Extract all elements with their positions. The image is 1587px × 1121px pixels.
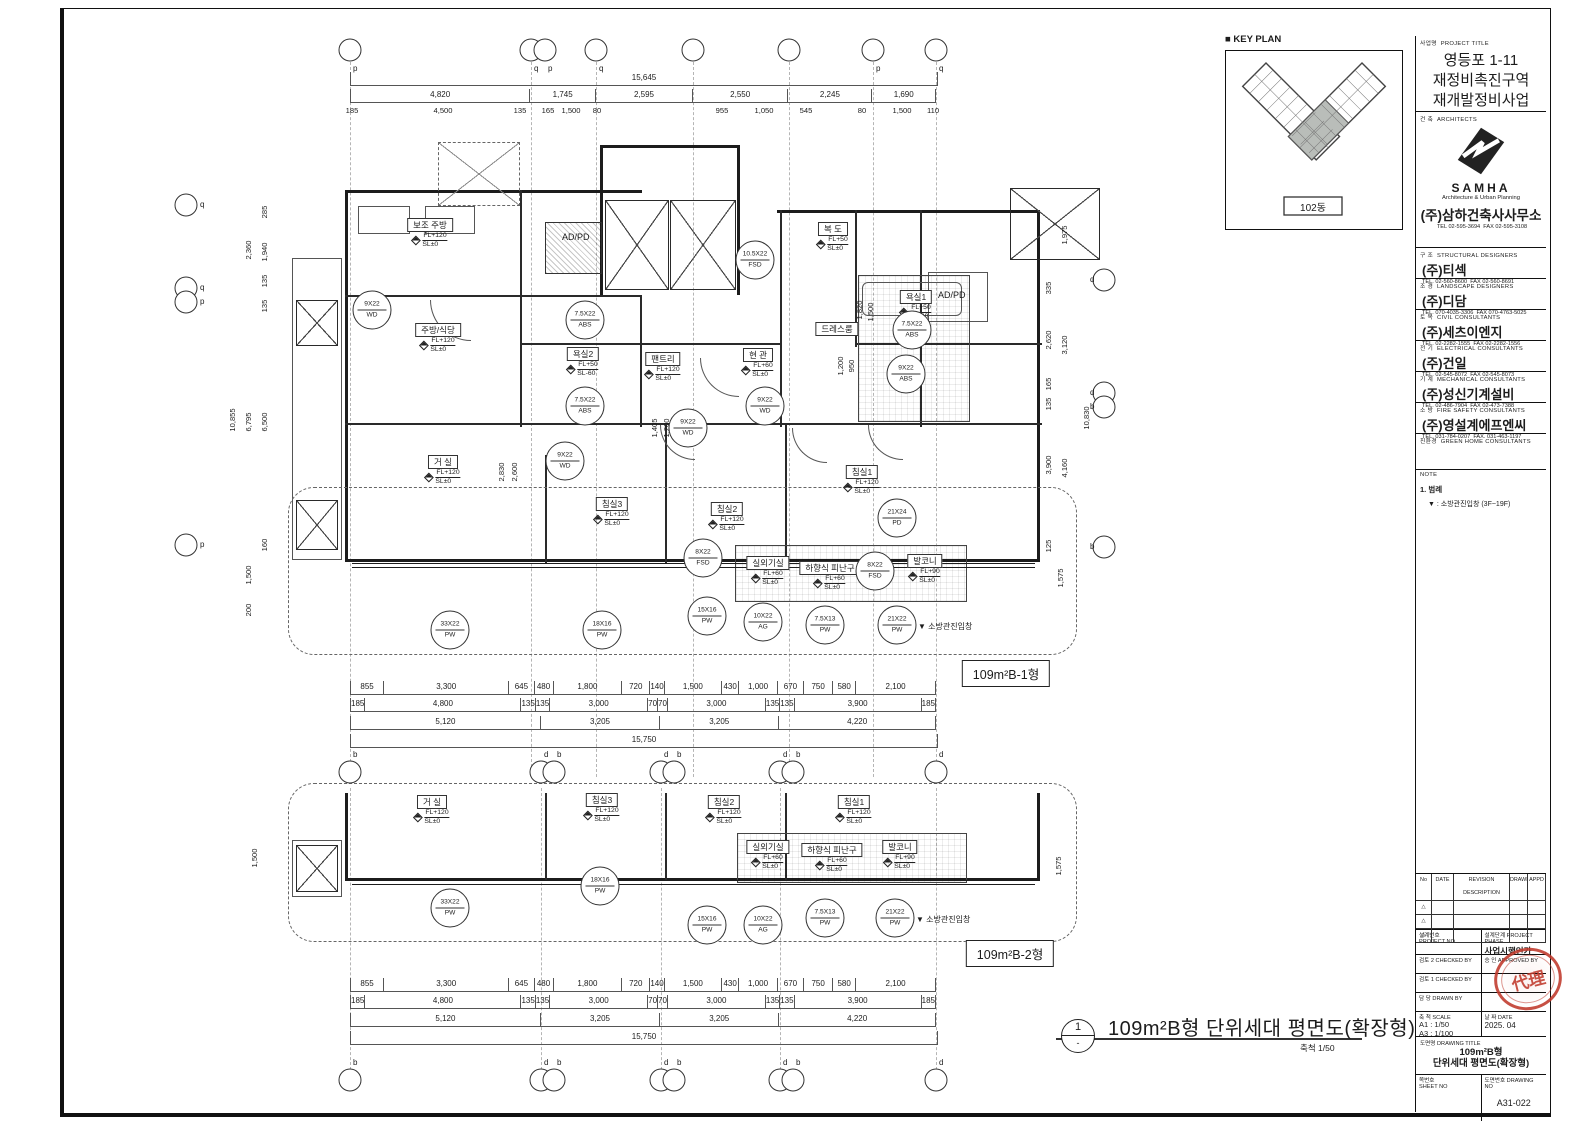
- opening-size: 15X16: [693, 916, 722, 926]
- dimension-value-vertical: 125: [1044, 540, 1053, 553]
- opening-size: 21X24: [883, 509, 912, 519]
- dimension-value: 80: [858, 106, 866, 115]
- key-plan: 102동: [1225, 50, 1403, 230]
- plan-shape-w: [600, 145, 740, 148]
- plan-shape-xbox: [605, 200, 669, 290]
- sl-value: SL±0: [762, 863, 783, 871]
- level-symbol-icon: [419, 340, 429, 350]
- dimension-value: 135: [520, 698, 534, 711]
- dimension-row: 5,1203,2053,2054,220: [350, 716, 936, 730]
- grid-bubble-letter: q: [200, 200, 204, 209]
- opening-code: PW: [445, 632, 456, 640]
- floor-level-note: FL+120 SL±0: [594, 511, 629, 527]
- sheet-footer-title: 109m²B형 단위세대 평면도(확장형): [1108, 1012, 1415, 1041]
- plan-shape-t: [345, 295, 642, 297]
- room-label: 복 도: [818, 222, 848, 236]
- dimension-value: 135: [535, 698, 549, 711]
- grid-bubble-letter: p: [876, 64, 880, 73]
- dimension-value: 5,120: [350, 716, 540, 729]
- dimension-value: 70: [647, 995, 657, 1008]
- opening-marker: 7.5X22 ABS: [566, 301, 605, 340]
- fl-value: FL+120: [854, 479, 879, 488]
- dimension-value: 4,820: [350, 89, 529, 102]
- dimension-value: 720: [621, 681, 649, 694]
- dimension-row: 4,8201,7452,5952,5502,2451,690: [350, 89, 936, 103]
- opening-code: FSD: [868, 573, 881, 581]
- floor-level-note: FL+50 SL±0: [817, 236, 848, 252]
- grid-bubble: [543, 761, 566, 784]
- consultant-firm: (주)디담: [1420, 290, 1542, 310]
- room-label: 침실2: [708, 795, 740, 809]
- dimension-value: 3,000: [549, 995, 647, 1008]
- fl-value: FL+120: [435, 469, 460, 478]
- level-symbol-icon: [583, 810, 593, 820]
- dimension-value: 670: [777, 978, 803, 991]
- dimension-value: 1,500: [664, 978, 721, 991]
- floor-level-note: FL+120 SL±0: [706, 809, 741, 825]
- dimension-row: 8553,3006454801,8007201401,5004301,00067…: [350, 978, 936, 992]
- adpd-label: AD/PD: [938, 290, 966, 300]
- plan-shape-w: [777, 210, 1040, 213]
- consultants-sections: 구 조 STRUCTURAL DESIGNERS (주)티섹 TEL. 02-5…: [1416, 248, 1546, 470]
- dimension-value-vertical: 1,200: [836, 356, 845, 375]
- opening-size: 7.5X13: [811, 616, 840, 626]
- opening-size: 7.5X22: [571, 311, 600, 321]
- consultant-firm: (주)건일: [1420, 352, 1542, 372]
- fl-value: FL+120: [424, 809, 449, 818]
- floor-level-note: FL+120 SL±0: [425, 469, 460, 485]
- room-label: 거 실: [417, 795, 447, 809]
- consultant-firm: (주)영설계에프엔씨: [1420, 414, 1542, 434]
- room-label: 욕실2: [567, 347, 599, 361]
- plan-shape-xbox: [296, 300, 338, 346]
- fl-value: FL+60: [752, 362, 773, 371]
- dimension-value: 135: [779, 995, 793, 1008]
- opening-marker: 7.5X13 PW: [806, 606, 845, 645]
- grid-bubble-letter: b: [557, 750, 561, 759]
- dimension-value: 2,595: [595, 89, 692, 102]
- floor-level-note: FL+90 SL±0: [909, 568, 940, 584]
- opening-marker: 9X22 WD: [669, 409, 708, 448]
- opening-code: WD: [683, 430, 694, 438]
- dimension-value: 70: [657, 995, 667, 1008]
- dimension-value: 2,100: [855, 978, 936, 991]
- opening-marker: 8X22 FSD: [856, 552, 895, 591]
- grid-bubble-letter: d: [544, 750, 548, 759]
- floor-level-note: FL+120 SL±0: [844, 479, 879, 495]
- grid-bubble-letter: b: [353, 1058, 357, 1067]
- floor-level-note: FL+120 SL±0: [584, 807, 619, 823]
- dimension-value-vertical: 2,600: [510, 462, 519, 481]
- dimension-value: 645: [508, 978, 533, 991]
- consultant-firm: (주)세츠이엔지: [1420, 321, 1542, 341]
- opening-marker: 33X22 PW: [431, 611, 470, 650]
- dimension-value: 80: [593, 106, 601, 115]
- opening-size: 10X22: [749, 613, 778, 623]
- fl-value: FL+60: [824, 575, 845, 584]
- floor-level-note: FL+60 SL±0: [814, 575, 845, 591]
- dimension-value: 185: [921, 995, 936, 1008]
- grid-bubble: [534, 39, 557, 62]
- dimension-value: 3,205: [659, 1013, 778, 1026]
- room-label: 발코니: [882, 840, 917, 854]
- opening-code: PW: [892, 627, 903, 635]
- dimension-value: 1,745: [529, 89, 595, 102]
- fl-value: FL+120: [719, 516, 744, 525]
- dimension-value: 1,500: [664, 681, 721, 694]
- plan-shape-w: [352, 884, 1035, 885]
- plan-shape-xbox: [1010, 188, 1100, 260]
- level-symbol-icon: [705, 812, 715, 822]
- opening-size: 7.5X22: [898, 321, 927, 331]
- opening-marker: 10.5X22 FSD: [736, 241, 775, 280]
- opening-marker: 15X16 PW: [688, 906, 727, 945]
- dimension-value: 4,800: [364, 698, 520, 711]
- sl-value: SL±0: [655, 375, 680, 383]
- grid-bubble-letter: p: [200, 297, 204, 306]
- plan-shape-cl: [350, 62, 351, 777]
- level-symbol-icon: [411, 235, 421, 245]
- dimension-value: 135: [779, 698, 793, 711]
- opening-code: ABS: [578, 408, 591, 416]
- drawing-title-1: 109m²B형: [1459, 1047, 1502, 1058]
- dimension-value: 2,245: [787, 89, 871, 102]
- opening-marker: 18X16 PW: [583, 611, 622, 650]
- dimension-value: 2,100: [855, 681, 936, 694]
- dimension-value: 480: [534, 681, 553, 694]
- grid-bubble: [1093, 536, 1116, 559]
- opening-size: 9X22: [551, 452, 580, 462]
- fl-value: FL+60: [762, 854, 783, 863]
- dimension-value: 645: [508, 681, 533, 694]
- grid-bubble: [175, 194, 198, 217]
- opening-size: 9X22: [674, 419, 703, 429]
- dimension-value: 185: [921, 698, 936, 711]
- grid-bubble-letter: p: [548, 64, 552, 73]
- floor-level-note: FL+60 SL±0: [752, 570, 783, 586]
- dimension-value: 110: [927, 106, 939, 115]
- fl-value: FL+120: [716, 809, 741, 818]
- dimension-value: 135: [765, 995, 779, 1008]
- level-symbol-icon: [843, 482, 853, 492]
- dimension-value-vertical: 335: [1044, 282, 1053, 295]
- floor-level-note: FL+120 SL±0: [420, 337, 455, 353]
- opening-code: WD: [760, 408, 771, 416]
- grid-bubble: [778, 39, 801, 62]
- dimension-value: 70: [647, 698, 657, 711]
- dimension-value-vertical: 135: [260, 275, 269, 288]
- dimension-value: 855: [350, 681, 383, 694]
- opening-marker: 9X22 WD: [746, 387, 785, 426]
- level-symbol-icon: [424, 472, 434, 482]
- room-label: 침실1: [846, 465, 878, 479]
- fl-value: FL+90: [894, 854, 915, 863]
- grid-bubble-letter: p: [200, 540, 204, 549]
- opening-code: PW: [595, 888, 606, 896]
- dimension-value-vertical: 135: [260, 300, 269, 313]
- dimension-value: 4,500: [433, 106, 452, 115]
- plan-shape-t: [520, 343, 782, 345]
- grid-bubble: [925, 1069, 948, 1092]
- room-label: 침실2: [711, 502, 743, 516]
- fl-value: FL+60: [762, 570, 783, 579]
- opening-marker: 10X22 AG: [744, 906, 783, 945]
- dimension-value: 580: [832, 978, 855, 991]
- dimension-value-vertical: 135: [1044, 398, 1053, 411]
- room-label: 침실3: [596, 497, 628, 511]
- opening-code: ABS: [899, 376, 912, 384]
- dimension-value-vertical: 1,820: [855, 300, 864, 319]
- project-title-text: 영등포 1-11 재정비촉진구역 재개발정비사업: [1420, 51, 1542, 111]
- opening-code: WD: [367, 312, 378, 320]
- level-symbol-icon: [741, 365, 751, 375]
- grid-bubble-letter: b: [1090, 542, 1094, 551]
- room-label: 욕실1: [900, 290, 932, 304]
- opening-marker: 15X16 PW: [688, 597, 727, 636]
- room-label: 거 실: [428, 455, 458, 469]
- dimension-value: 1,500: [561, 106, 580, 115]
- sl-value: SL±0: [430, 346, 455, 354]
- grid-bubble: [862, 39, 885, 62]
- dimension-value: 2,550: [692, 89, 787, 102]
- grid-bubble-letter: d: [1090, 388, 1094, 397]
- floor-level-note: FL+60 SL±0: [742, 362, 773, 378]
- grid-bubble: [543, 1069, 566, 1092]
- dimension-value: 3,205: [540, 716, 659, 729]
- sl-value: SL±0: [854, 488, 879, 496]
- opening-size: 9X22: [358, 301, 387, 311]
- dimension-value: 580: [832, 681, 855, 694]
- room-label: 침실3: [586, 793, 618, 807]
- grid-bubble: [1093, 269, 1116, 292]
- floor-level-note: FL+120 SL±0: [414, 809, 449, 825]
- level-symbol-icon: [815, 860, 825, 870]
- grid-bubble-letter: b: [796, 750, 800, 759]
- dimension-value: 3,300: [383, 681, 508, 694]
- opening-size: 9X22: [892, 365, 921, 375]
- grid-bubble-letter: d: [939, 750, 943, 759]
- sl-value: SL±0: [826, 866, 847, 874]
- level-symbol-icon: [566, 364, 576, 374]
- opening-size: 8X22: [689, 549, 718, 559]
- grid-bubble: [339, 39, 362, 62]
- grid-bubble-letter: d: [783, 750, 787, 759]
- dimension-value: 855: [350, 978, 383, 991]
- dimension-value-vertical: 10,855: [228, 408, 237, 431]
- grid-bubble-letter: d: [664, 750, 668, 759]
- room-label: 보조 주방: [407, 218, 453, 232]
- dimension-value: 4,220: [778, 716, 936, 729]
- dimension-total: 15,750: [350, 1031, 938, 1045]
- opening-marker: 33X22 PW: [431, 889, 470, 928]
- fl-value: FL+60: [826, 857, 847, 866]
- dimension-value: 1,800: [553, 978, 622, 991]
- room-label: 발코니: [907, 554, 942, 568]
- room-label: 실외기실: [746, 556, 789, 570]
- dimension-value: 720: [621, 978, 649, 991]
- level-symbol-icon: [751, 857, 761, 867]
- grid-bubble: [339, 761, 362, 784]
- sl-value: SL±0: [435, 478, 460, 486]
- opening-size: 21X22: [883, 616, 912, 626]
- plan-shape-thin: [358, 206, 410, 234]
- fl-value: FL+50: [827, 236, 848, 245]
- grid-bubble-letter: q: [939, 64, 943, 73]
- dimension-value: 185: [346, 106, 359, 115]
- drawing-title-2: 단위세대 평면도(확장형): [1433, 1058, 1529, 1069]
- dimension-value: 3,300: [383, 978, 508, 991]
- grid-bubble: [782, 761, 805, 784]
- opening-size: 7.5X13: [811, 909, 840, 919]
- sl-value: SL±0: [762, 579, 783, 587]
- sl-value: SL±0: [604, 520, 629, 528]
- dimension-value: 135: [520, 995, 534, 1008]
- plan-shape-t: [520, 190, 522, 427]
- fl-value: FL+120: [655, 366, 680, 375]
- opening-size: 9X22: [751, 397, 780, 407]
- opening-size: 10X22: [749, 916, 778, 926]
- dimension-value: 1,500: [892, 106, 911, 115]
- opening-marker: 21X22 PW: [876, 899, 915, 938]
- date-value: 2025. 04: [1485, 1021, 1544, 1030]
- dimension-value-vertical: 4,160: [1060, 458, 1069, 477]
- samha-logo-icon: [1456, 126, 1506, 176]
- fl-value: FL+90: [919, 568, 940, 577]
- grid-bubble-letter: b: [677, 750, 681, 759]
- level-symbol-icon: [644, 369, 654, 379]
- floor-level-note: FL+120 SL±0: [645, 366, 680, 382]
- sl-value: SL±0: [894, 863, 915, 871]
- scale-date-row: 축 척 SCALE A1 : 1/50A3 : 1/100 날 짜 DATE 2…: [1416, 1012, 1546, 1037]
- dimension-value: 70: [657, 698, 667, 711]
- dimension-value: 670: [777, 681, 803, 694]
- dimension-value-vertical: 1,575: [1056, 568, 1065, 587]
- floor-level-note: FL+120 SL±0: [836, 809, 871, 825]
- opening-code: PW: [890, 920, 901, 928]
- dimension-value: 750: [803, 681, 832, 694]
- dimension-value: 185: [350, 698, 364, 711]
- room-label: 실외기실: [746, 840, 789, 854]
- grid-bubble-letter: b: [796, 1058, 800, 1067]
- opening-code: WD: [560, 463, 571, 471]
- revision-grid: NoDATEREVISION DESCRIPTIONDRAWNAPPD △ △ …: [1416, 874, 1546, 943]
- dimension-value: 135: [765, 698, 779, 711]
- dimension-value: 3,000: [549, 698, 647, 711]
- dimension-row: 1854,8001351353,00070703,0001351353,9001…: [350, 698, 936, 712]
- room-label: 침실1: [838, 795, 870, 809]
- opening-size: 7.5X22: [571, 397, 600, 407]
- grid-bubble: [682, 39, 705, 62]
- floor-level-note: FL+50 SL-60: [567, 361, 598, 377]
- project-title-section: 사업명 PROJECT TITLE 영등포 1-11 재정비촉진구역 재개발정비…: [1416, 36, 1546, 112]
- note-section: NOTE 1. 범례 ▼ : 소방관진입창 (3F~19F): [1416, 470, 1546, 874]
- grid-bubble-letter: d: [783, 1058, 787, 1067]
- grid-bubble-letter: b: [557, 1058, 561, 1067]
- sl-value: SL±0: [716, 818, 741, 826]
- plan-shape-xbox: [670, 200, 736, 290]
- opening-marker: 9X22 ABS: [887, 355, 926, 394]
- plan-shape-cl: [531, 62, 532, 777]
- grid-bubble-letter: q: [599, 64, 603, 73]
- dimension-value-vertical: 165: [1044, 378, 1053, 391]
- opening-size: 18X16: [588, 621, 617, 631]
- grid-bubble-letter: d: [664, 1058, 668, 1067]
- floor-level-note: FL+90 SL±0: [884, 854, 915, 870]
- grid-bubble-letter: b: [1090, 402, 1094, 411]
- opening-marker: 7.5X22 ABS: [893, 311, 932, 350]
- sheet-no-row: 쪽번호SHEET NO 도면번호 DRAWING NO A31-022: [1416, 1075, 1546, 1121]
- dimension-value: 165: [542, 106, 555, 115]
- opening-marker: 18X16 PW: [581, 867, 620, 906]
- dimension-value: 4,800: [364, 995, 520, 1008]
- grid-bubble-letter: d: [939, 1058, 943, 1067]
- dimension-value: 3,900: [794, 698, 921, 711]
- architect-firm: (주)삼하건축사사무소: [1420, 204, 1542, 224]
- sl-value: SL±0: [919, 577, 940, 585]
- plan-shape-xdash: [438, 142, 520, 206]
- opening-code: PW: [702, 618, 713, 626]
- dimension-value: 480: [534, 978, 553, 991]
- sl-value: SL±0: [752, 371, 773, 379]
- grid-bubble: [339, 1069, 362, 1092]
- opening-code: FSD: [748, 262, 761, 270]
- sl-value: SL±0: [422, 241, 447, 249]
- grid-bubble: [175, 534, 198, 557]
- dimension-value: 430: [721, 978, 738, 991]
- sl-value: SL±0: [594, 816, 619, 824]
- plan-shape-cl: [789, 62, 790, 777]
- dimension-value: 140: [649, 978, 663, 991]
- dimension-total: 15,645: [350, 72, 938, 86]
- grid-bubble-letter: q: [200, 283, 204, 292]
- opening-marker: 8X22 FSD: [684, 539, 723, 578]
- opening-marker: 9X22 WD: [546, 442, 585, 481]
- sl-value: SL-60: [577, 370, 598, 378]
- dimension-value: 1,000: [738, 978, 777, 991]
- dimension-value-vertical: 1,940: [260, 242, 269, 261]
- dimension-value-vertical: 1,975: [1060, 225, 1069, 244]
- dimension-value: 430: [721, 681, 738, 694]
- level-symbol-icon: [708, 519, 718, 529]
- level-symbol-icon: [593, 514, 603, 524]
- grid-bubble: [175, 291, 198, 314]
- room-label: 하향식 피난구: [801, 843, 862, 857]
- dimension-value: 1,000: [738, 681, 777, 694]
- grid-bubble: [1093, 396, 1116, 419]
- dimension-value: 135: [514, 106, 527, 115]
- floor-level-note: FL+60 SL±0: [816, 857, 847, 873]
- dimension-value-vertical: 285: [260, 206, 269, 219]
- adpd-label: AD/PD: [562, 232, 590, 242]
- opening-code: ABS: [578, 322, 591, 330]
- consultant-firm: (주)성신기계설비: [1420, 383, 1542, 403]
- level-symbol-icon: [751, 573, 761, 583]
- sl-value: SL±0: [827, 245, 848, 253]
- sl-value: SL±0: [824, 584, 845, 592]
- dimension-value: 955: [716, 106, 729, 115]
- level-symbol-icon: [813, 578, 823, 588]
- dimension-value: 185: [350, 995, 364, 1008]
- opening-code: PW: [702, 927, 713, 935]
- opening-marker: 21X22 PW: [878, 606, 917, 645]
- dimension-value-vertical: 3,120: [1060, 335, 1069, 354]
- dimension-value-vertical: 200: [244, 604, 253, 617]
- level-symbol-icon: [835, 812, 845, 822]
- plan-type-label: 109m²B-2형: [966, 940, 1054, 967]
- drawing-title-section: 도면명 DRAWING TITLE 109m²B형 단위세대 평면도(확장형): [1416, 1037, 1546, 1075]
- dimension-value-vertical: 2,360: [244, 240, 253, 259]
- opening-code: PW: [820, 920, 831, 928]
